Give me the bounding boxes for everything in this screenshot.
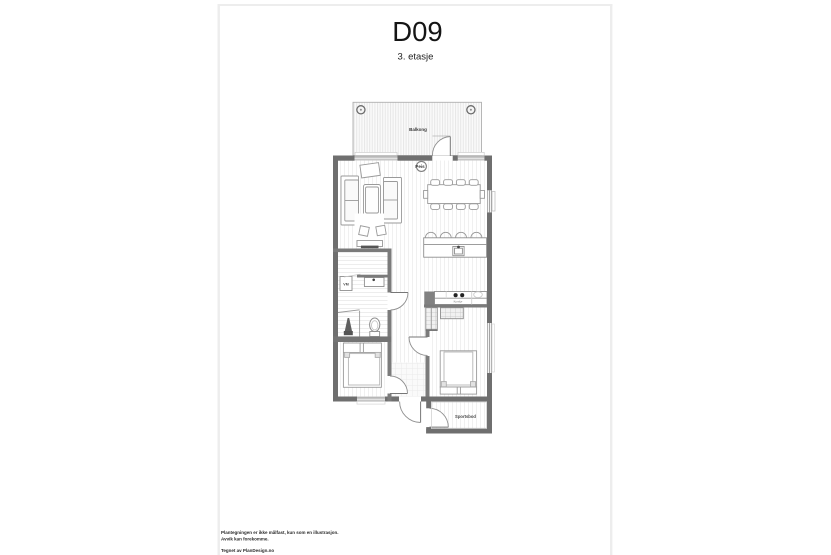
- svg-text:Plantegningen er ikke målfast,: Plantegningen er ikke målfast, kun som e…: [221, 529, 339, 535]
- svg-text:Sportsbod: Sportsbod: [455, 414, 476, 419]
- svg-text:Komfyr: Komfyr: [454, 300, 463, 304]
- svg-text:Avvik kan forekomme.: Avvik kan forekomme.: [221, 536, 269, 541]
- svg-text:Tegnet av PlanDesign.no: Tegnet av PlanDesign.no: [221, 548, 274, 553]
- svg-text:Peis: Peis: [415, 164, 425, 169]
- svg-text:3. etasje: 3. etasje: [398, 52, 434, 63]
- svg-text:D09: D09: [392, 16, 442, 47]
- svg-text:Balkong: Balkong: [409, 127, 427, 132]
- svg-text:VM: VM: [343, 283, 348, 287]
